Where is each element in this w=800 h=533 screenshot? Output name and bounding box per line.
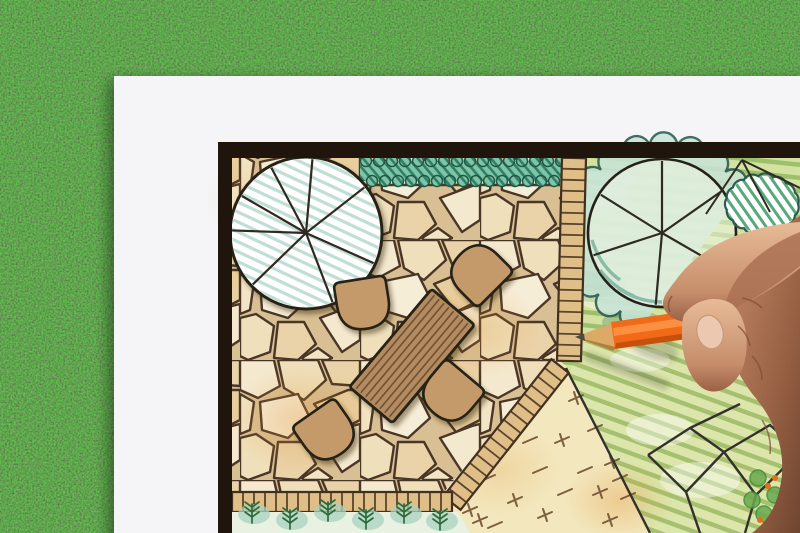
photo-scene: Photograph of a hand holding an orange c… — [0, 0, 800, 533]
hedge-symbol — [360, 156, 573, 187]
scene-canvas — [0, 0, 800, 533]
